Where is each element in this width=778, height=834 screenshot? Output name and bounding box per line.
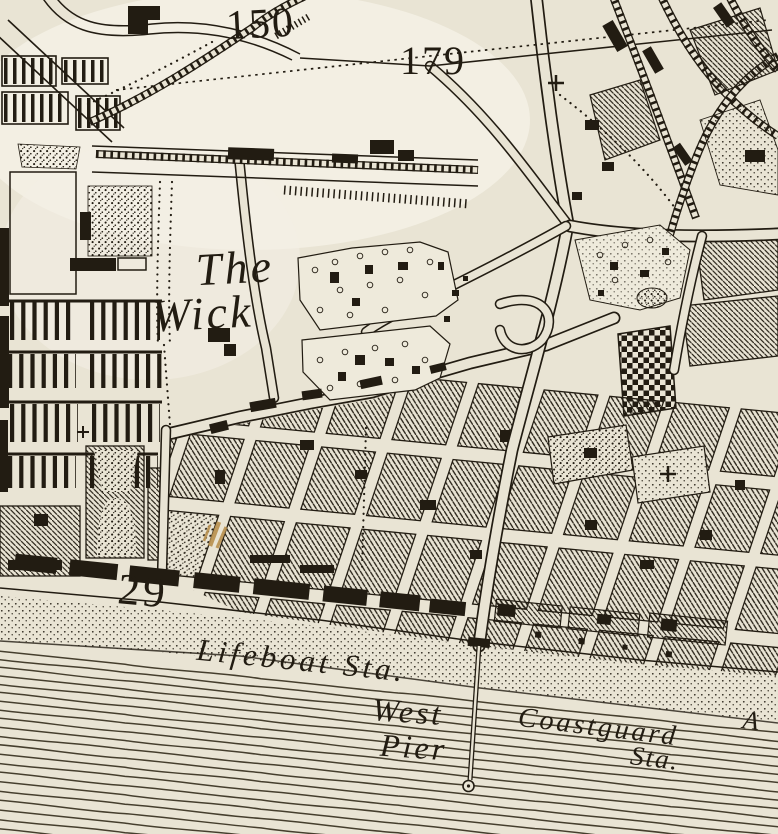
northeast-garden <box>575 225 690 310</box>
spot-height-150: 150 <box>225 0 296 49</box>
checker-terrace-block <box>618 326 676 416</box>
goblet-garden <box>86 446 144 558</box>
map-canvas: 150 179 29 The Wick Lifeboat Sta. West P… <box>0 0 778 834</box>
pier-label-pier: Pier <box>378 727 448 768</box>
area-label-wick: Wick <box>151 285 255 341</box>
coastguard-sta-label: Sta. <box>629 740 682 776</box>
garden-square <box>88 186 152 256</box>
station-building <box>228 147 274 161</box>
historic-town-map: 150 179 29 The Wick Lifeboat Sta. West P… <box>0 0 778 834</box>
spot-height-179: 179 <box>400 38 466 83</box>
plantation-strip <box>18 144 80 169</box>
spot-height-29: 29 <box>116 564 170 617</box>
